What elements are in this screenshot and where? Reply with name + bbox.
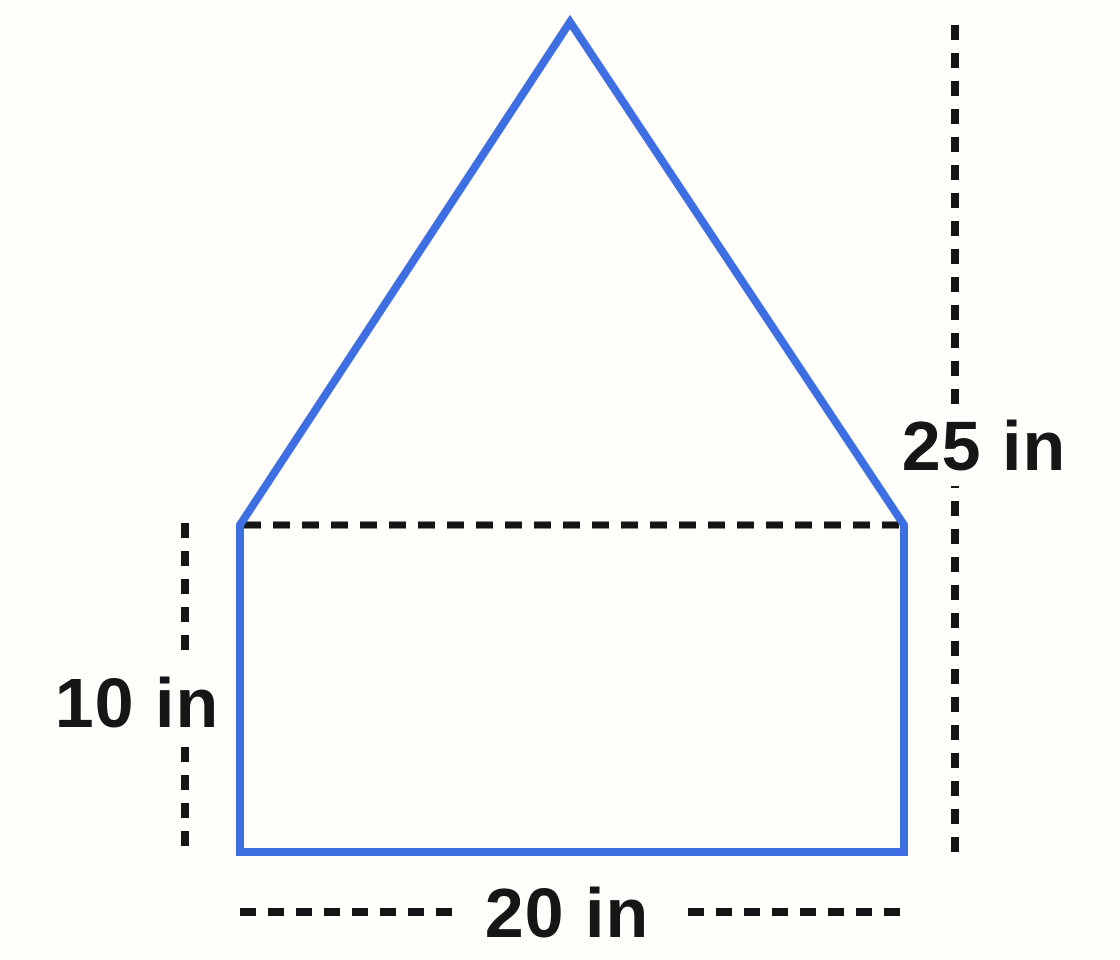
geometry-diagram-canvas: 25 in 10 in 20 in xyxy=(0,0,1120,960)
total-height-label: 25 in xyxy=(902,407,1067,485)
rect-width-label: 20 in xyxy=(485,874,650,952)
rect-height-label: 10 in xyxy=(55,664,220,742)
house-pentagon-outline xyxy=(240,22,904,852)
diagram-stage: 25 in 10 in 20 in xyxy=(0,0,1120,960)
